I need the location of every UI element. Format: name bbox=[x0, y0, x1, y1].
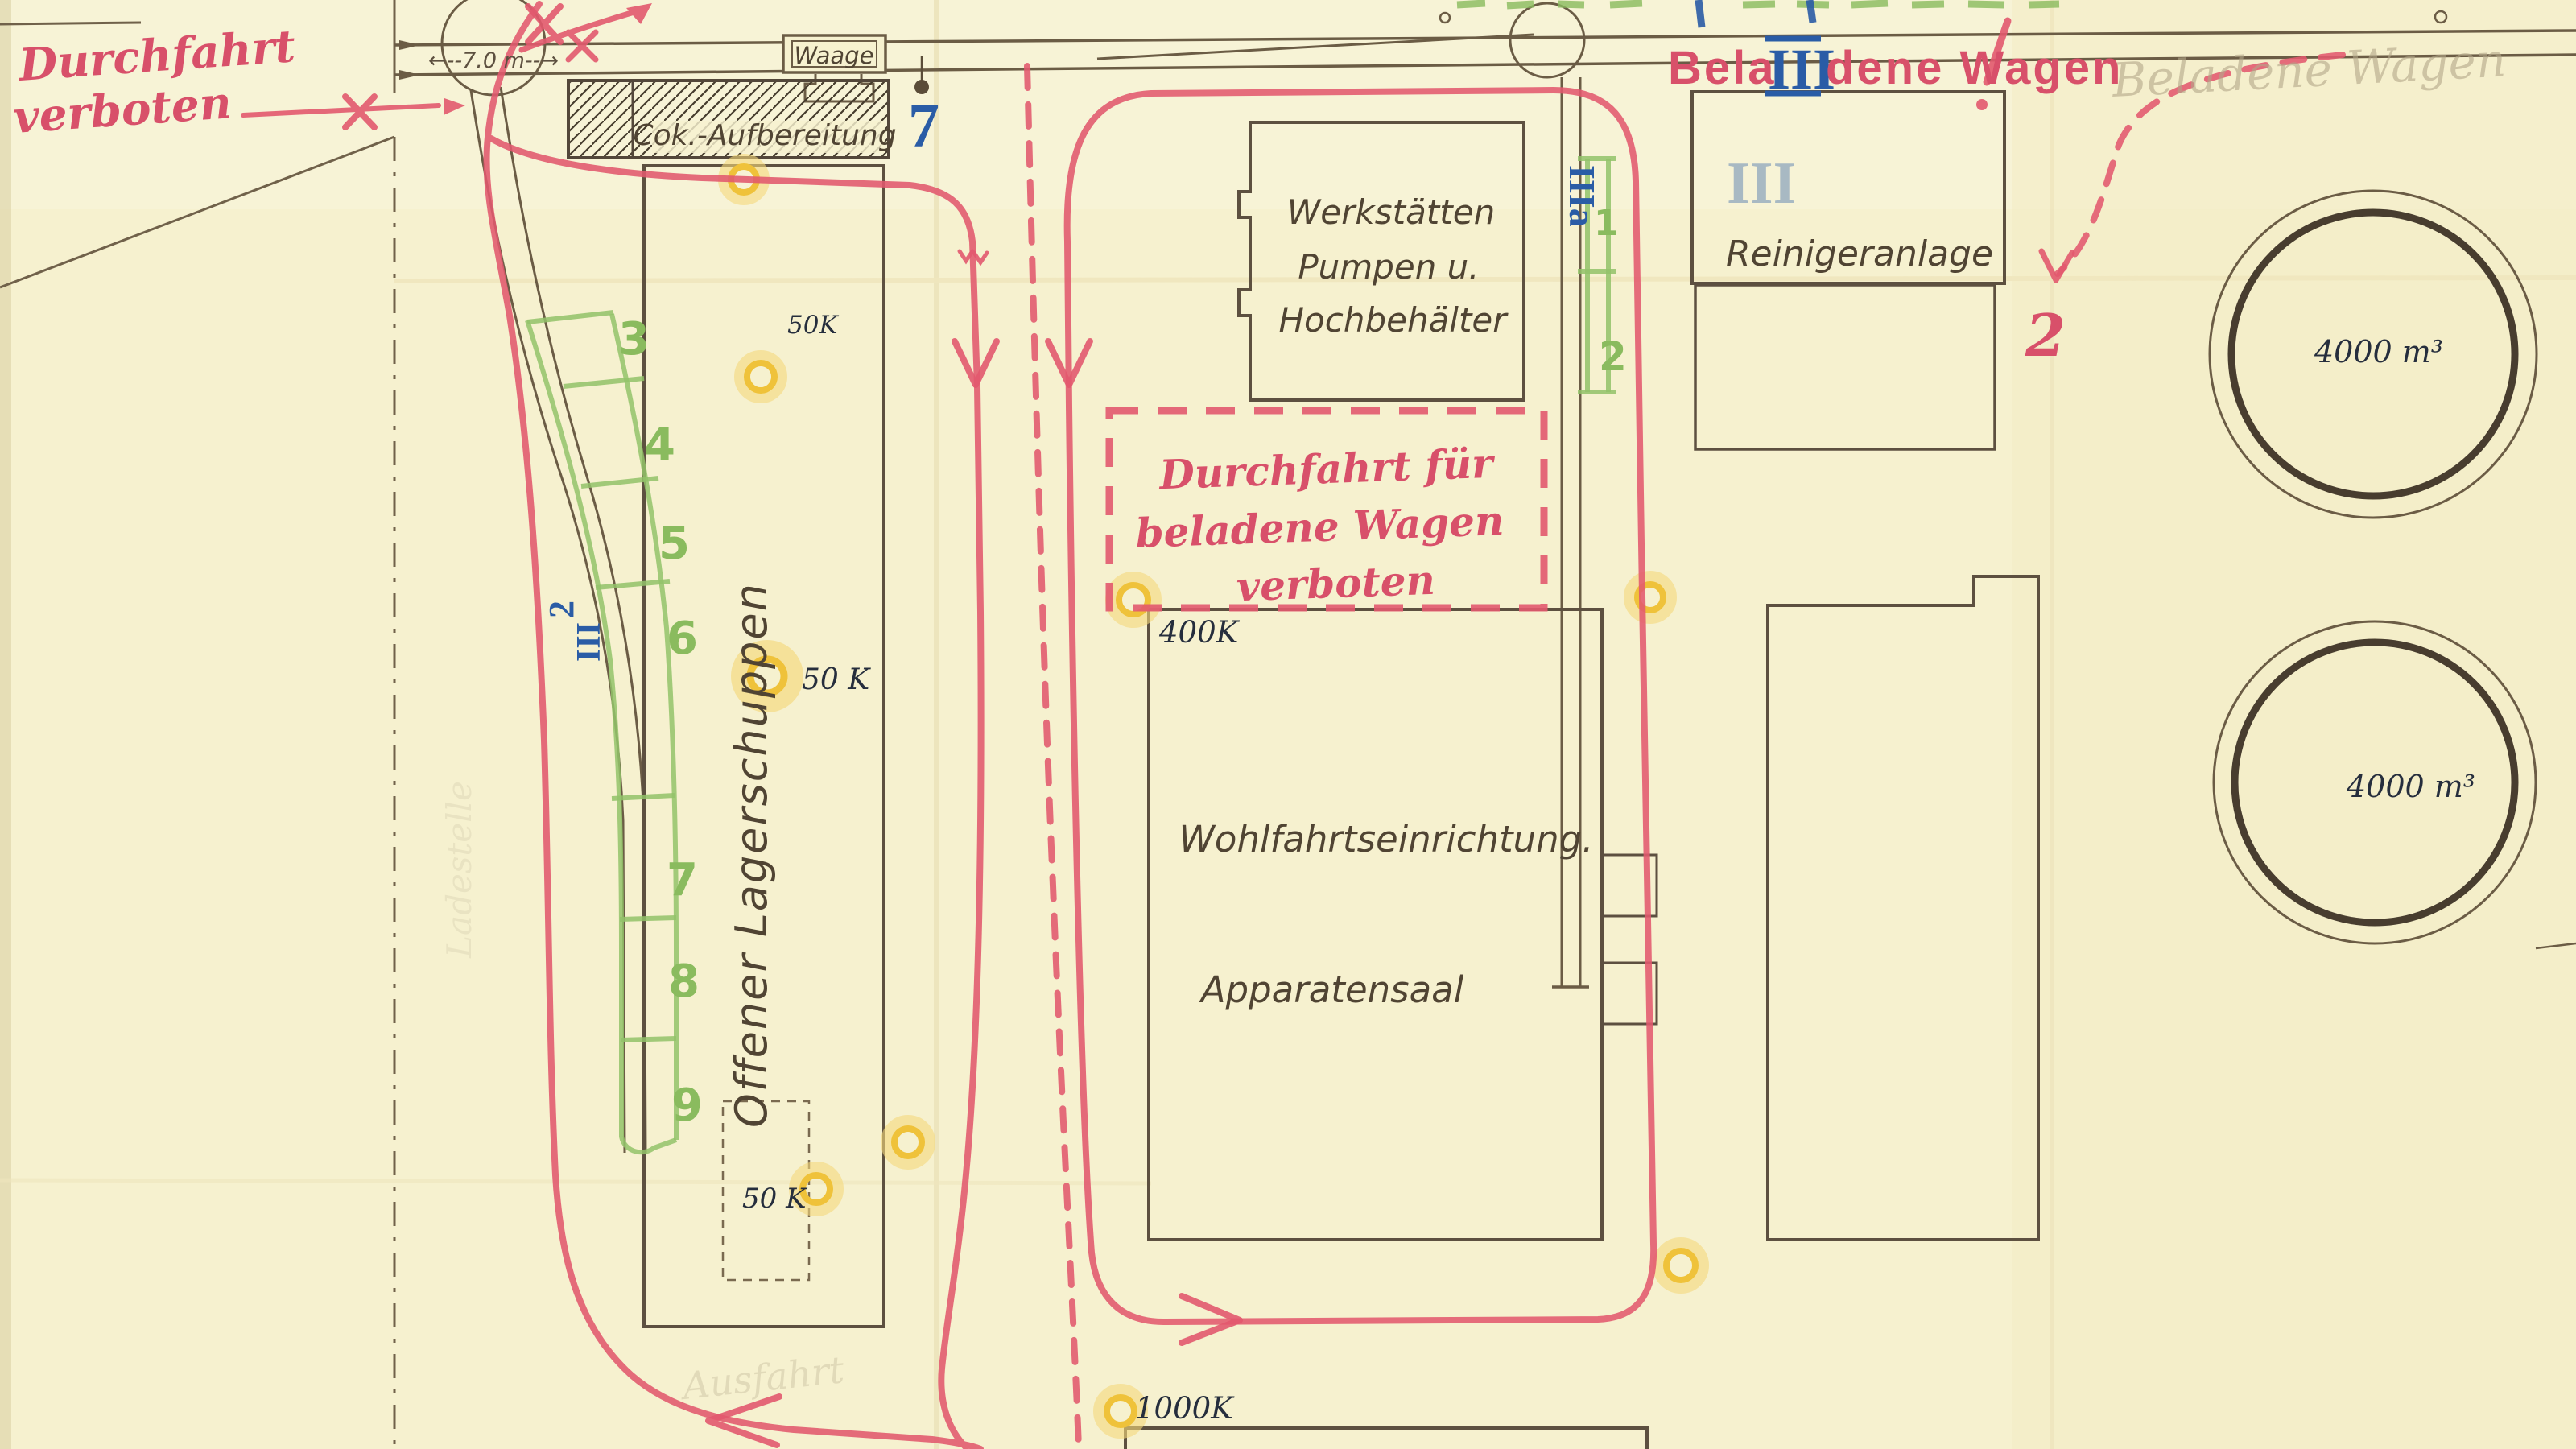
label-green-6: 6 bbox=[667, 613, 698, 665]
label-1000k: 1000K bbox=[1135, 1391, 1235, 1426]
label-offener-lagerschuppen: Offener Lagerschuppen bbox=[726, 582, 777, 1128]
scanned-site-plan-page: { "red": { "no_entry_line1": "Durchfahrt… bbox=[0, 0, 2576, 1449]
label-green-3: 3 bbox=[618, 313, 650, 365]
label-blue-2-left: 2 bbox=[542, 601, 581, 618]
label-green-9: 9 bbox=[671, 1080, 703, 1132]
label-gasholder-south: 4000 m³ bbox=[2346, 769, 2475, 804]
label-green-2: 2 bbox=[1599, 333, 1627, 380]
site-plan-scan: Durchfahrt verboten Bela III dene Wagen … bbox=[0, 0, 2576, 1449]
paper-edge-left bbox=[0, 0, 11, 1449]
label-reinigeranlage: Reinigeranlage bbox=[1726, 233, 1993, 275]
green-tick-5 bbox=[620, 918, 676, 919]
label-gasholder-north: 4000 m³ bbox=[2314, 334, 2443, 369]
label-50k-mid: 50 K bbox=[802, 663, 871, 696]
green-tick-6 bbox=[621, 1038, 676, 1040]
label-400k: 400K bbox=[1158, 615, 1241, 650]
label-blue-iii-left: III bbox=[571, 622, 608, 662]
label-beladene-pre: Bela bbox=[1668, 42, 1777, 94]
sheet-corner-line bbox=[0, 23, 141, 24]
label-track-gauge-dimension: ←--7.0 m--→ bbox=[428, 48, 559, 73]
label-wohlfahrtseinrichtung: Wohlfahrtseinrichtung. bbox=[1179, 818, 1593, 861]
label-green-1: 1 bbox=[1594, 203, 1619, 244]
label-50k-top: 50K bbox=[787, 311, 839, 340]
label-beladene-post: dene Wagen bbox=[1826, 42, 2123, 94]
label-blue-7: 7 bbox=[908, 90, 939, 160]
prohibition-box-line3: verboten bbox=[1236, 556, 1436, 611]
pencil-ladestelle: Ladestelle bbox=[440, 781, 479, 959]
label-cok-aufbereitung: Cok.-Aufbereitung bbox=[633, 119, 896, 152]
label-werkstaetten-line1: Werkstätten bbox=[1287, 192, 1495, 232]
label-blue-iii-faint: III bbox=[1727, 151, 1796, 217]
label-werkstaetten-line3: Hochbehälter bbox=[1278, 300, 1509, 340]
label-red-2: 2 bbox=[2025, 301, 2066, 369]
label-green-5: 5 bbox=[658, 518, 690, 570]
label-waage: Waage bbox=[795, 42, 874, 69]
label-green-8: 8 bbox=[668, 956, 700, 1008]
green-tick-4 bbox=[612, 795, 675, 799]
label-green-4: 4 bbox=[644, 419, 675, 472]
label-werkstaetten-line2: Pumpen u. bbox=[1298, 247, 1479, 287]
label-green-7: 7 bbox=[667, 854, 698, 906]
label-50k-low: 50 K bbox=[742, 1183, 808, 1215]
label-apparatensaal: Apparatensaal bbox=[1199, 968, 1464, 1011]
red-exclamation-dot bbox=[1976, 99, 1988, 110]
